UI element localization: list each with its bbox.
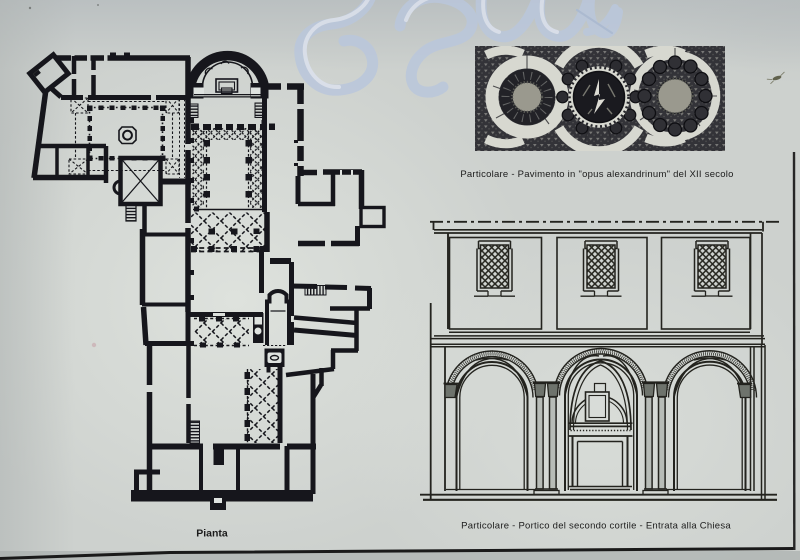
svg-text:Particolare - Pavimento in "op: Particolare - Pavimento in "opus alexand… (460, 169, 733, 180)
svg-text:Pianta: Pianta (196, 528, 228, 540)
svg-text:Particolare - Portico del seco: Particolare - Portico del secondo cortil… (461, 521, 731, 532)
